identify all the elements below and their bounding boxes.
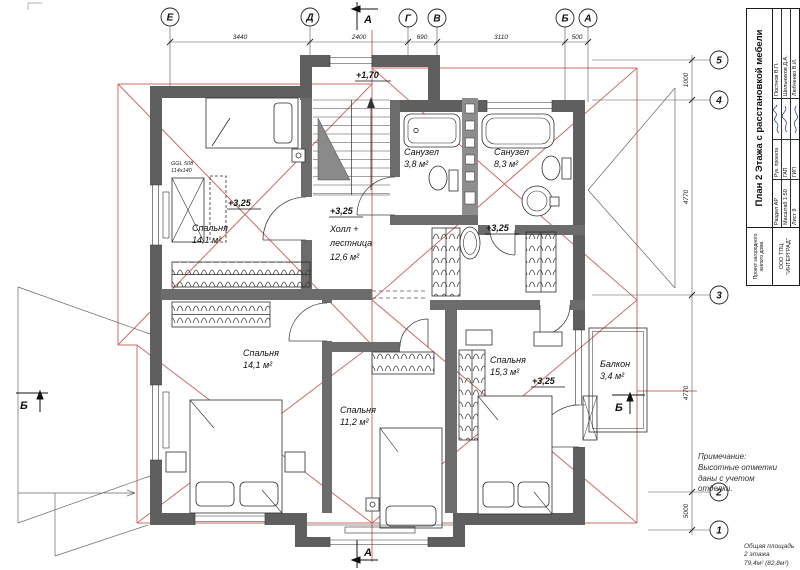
door-bath-small <box>357 177 395 215</box>
axis-label: 4 <box>715 96 722 107</box>
tb-name: Любченко В.И. <box>791 9 799 98</box>
signature <box>791 98 799 139</box>
svg-text:А: А <box>363 547 372 559</box>
title-block-row: Раздел АР Рук. проекта Постнов В.П. <box>773 9 782 227</box>
dim-top: 690 <box>417 34 428 41</box>
svg-text:А: А <box>363 14 372 26</box>
floor-plan-drawing: Е Д Г В Б А 5 4 3 2 1 3440 2400 690 3110… <box>0 0 800 570</box>
sink-oval <box>460 227 480 259</box>
axis-label: Б <box>561 14 568 25</box>
room-area: 15,3 м² <box>490 367 520 377</box>
room-name: Спальня <box>490 355 526 365</box>
dim-right: 5000 <box>683 503 690 518</box>
bed-single-tl <box>206 98 298 148</box>
window-balcony <box>573 330 585 405</box>
vent-symbol-bay <box>366 498 379 511</box>
tb-cell-sheet: Лист 9 <box>791 179 799 227</box>
elevation-bedroom-br: +3,25 <box>532 376 556 386</box>
skylight-size: 114х140 <box>171 168 193 174</box>
title-block-row: Масштаб 1:50 ГАП Шильников Д.А. <box>782 9 791 227</box>
axis-circles-top <box>161 8 597 27</box>
title-block-inner: Проект загородного жилого дома План 2 Эт… <box>746 8 800 286</box>
axis-label: В <box>433 14 440 25</box>
total-area-line: Общая площадь <box>744 543 800 551</box>
radiator <box>163 392 169 448</box>
note: Примечание: Высотные отметки даны с учет… <box>698 452 798 495</box>
sheet-title: План 2 Этажа с расстановкой мебели <box>747 9 772 227</box>
dim-top: 3440 <box>233 34 248 41</box>
title-block-table: Раздел АР Рук. проекта Постнов В.П. Масш… <box>773 9 799 227</box>
dim-top: 2400 <box>351 34 367 41</box>
title-block-company: ООО ТПЦ "ИНТЕРГРАД" <box>773 227 799 285</box>
title-block-project: Проект загородного жилого дома <box>747 227 772 285</box>
tb-role: ГАП <box>782 139 790 179</box>
total-area-line: 79,4м² (82,8м²) <box>744 560 800 568</box>
room-name: Спальня <box>340 405 376 415</box>
axis-label: 3 <box>716 291 722 302</box>
skylight-model: GGL 508 <box>171 161 194 167</box>
room-area: 8,3 м² <box>494 159 519 169</box>
door-bedroom-br <box>540 305 570 335</box>
elevation-bedroom-tl: +3,25 <box>228 198 252 208</box>
dim-top: 3110 <box>494 34 508 41</box>
window-bay <box>330 537 428 547</box>
floor-plan-sheet: Е Д Г В Б А 5 4 3 2 1 3440 2400 690 3110… <box>0 0 800 570</box>
room-name: Спальня <box>192 223 228 233</box>
section-b-left: Б <box>16 391 48 412</box>
vent-symbol <box>292 149 305 162</box>
axis-label: Д <box>305 13 313 24</box>
room-name: лестница <box>329 238 372 248</box>
title-block-row: Лист 9 ГИП Любченко В.И. <box>791 9 799 227</box>
note-line: отделки. <box>698 484 798 495</box>
room-area: 11,2 м² <box>340 417 370 427</box>
elevation-corridor: +3,25 <box>486 223 510 233</box>
section-a-top: А <box>352 2 378 30</box>
bathtub-small <box>404 114 460 147</box>
bathtub-big <box>482 114 554 148</box>
room-name: Спальня <box>243 348 279 358</box>
elevation-hall: +3,25 <box>330 206 354 216</box>
bed-single-bm <box>380 428 442 528</box>
svg-text:Б: Б <box>615 402 623 414</box>
bed-double-br <box>478 396 552 514</box>
window-stair-tower <box>330 55 372 67</box>
left-gable <box>18 287 150 556</box>
note-line: даны с учетом <box>698 474 798 485</box>
window-top-right <box>487 100 552 112</box>
axis-label: Г <box>405 14 412 25</box>
dim-right: 4770 <box>683 385 690 400</box>
radiator <box>163 192 169 238</box>
tb-name: Шильников Д.А. <box>782 9 790 98</box>
room-name: Балкон <box>600 359 630 369</box>
total-area-line: 2 этажа <box>744 551 800 559</box>
room-area: 14,1 м² <box>243 360 273 370</box>
axis-label: 1 <box>716 526 722 537</box>
desk-br-2 <box>534 332 562 346</box>
note-line: Примечание: <box>698 452 798 463</box>
room-name: Санузел <box>494 147 529 157</box>
svg-text:Б: Б <box>20 400 28 412</box>
room-area: 14,1 м² <box>192 235 222 245</box>
sheet-corner-mark <box>28 3 42 10</box>
signature <box>782 98 790 139</box>
room-name: Санузел <box>404 147 439 157</box>
tb-name: Постнов В.П. <box>773 9 781 98</box>
total-area: Общая площадь 2 этажа 79,4м² (82,8м²) <box>744 543 800 568</box>
window-left-1 <box>150 185 162 245</box>
dim-right: 1000 <box>683 72 690 87</box>
desk-br-1 <box>466 330 492 345</box>
room-area: 3,8 м² <box>404 159 429 169</box>
door-bedroom-bm <box>400 319 428 347</box>
window-left-2 <box>150 385 162 460</box>
dim-top: 500 <box>572 34 583 41</box>
toilet-big <box>542 156 571 180</box>
signature <box>773 98 781 139</box>
title-block: Проект загородного жилого дома План 2 Эт… <box>746 8 800 286</box>
right-gable <box>588 88 675 288</box>
door-bedroom-tl <box>263 197 306 240</box>
dim-right: 4770 <box>683 189 690 204</box>
room-name: Холл + <box>329 224 359 234</box>
note-line: Высотные отметки <box>698 463 798 474</box>
section-b-right: Б <box>612 393 645 414</box>
door-bedroom-bl <box>289 303 327 341</box>
tb-role: ГИП <box>791 139 799 179</box>
tb-cell-scale: Масштаб 1:50 <box>782 179 790 227</box>
elevation-stairs: +1,70 <box>356 70 379 80</box>
axis-label: 5 <box>716 56 722 67</box>
stair-cut-mark <box>318 118 350 180</box>
tb-cell-section: Раздел АР <box>773 179 781 227</box>
room-area: 3,4 м² <box>600 371 625 381</box>
tb-role: Рук. проекта <box>773 139 781 179</box>
room-area: 12,6 м² <box>330 252 360 262</box>
axis-label: Е <box>167 13 174 24</box>
toilet-small <box>429 166 458 191</box>
sink-round <box>522 186 559 216</box>
axis-label: А <box>583 14 591 25</box>
